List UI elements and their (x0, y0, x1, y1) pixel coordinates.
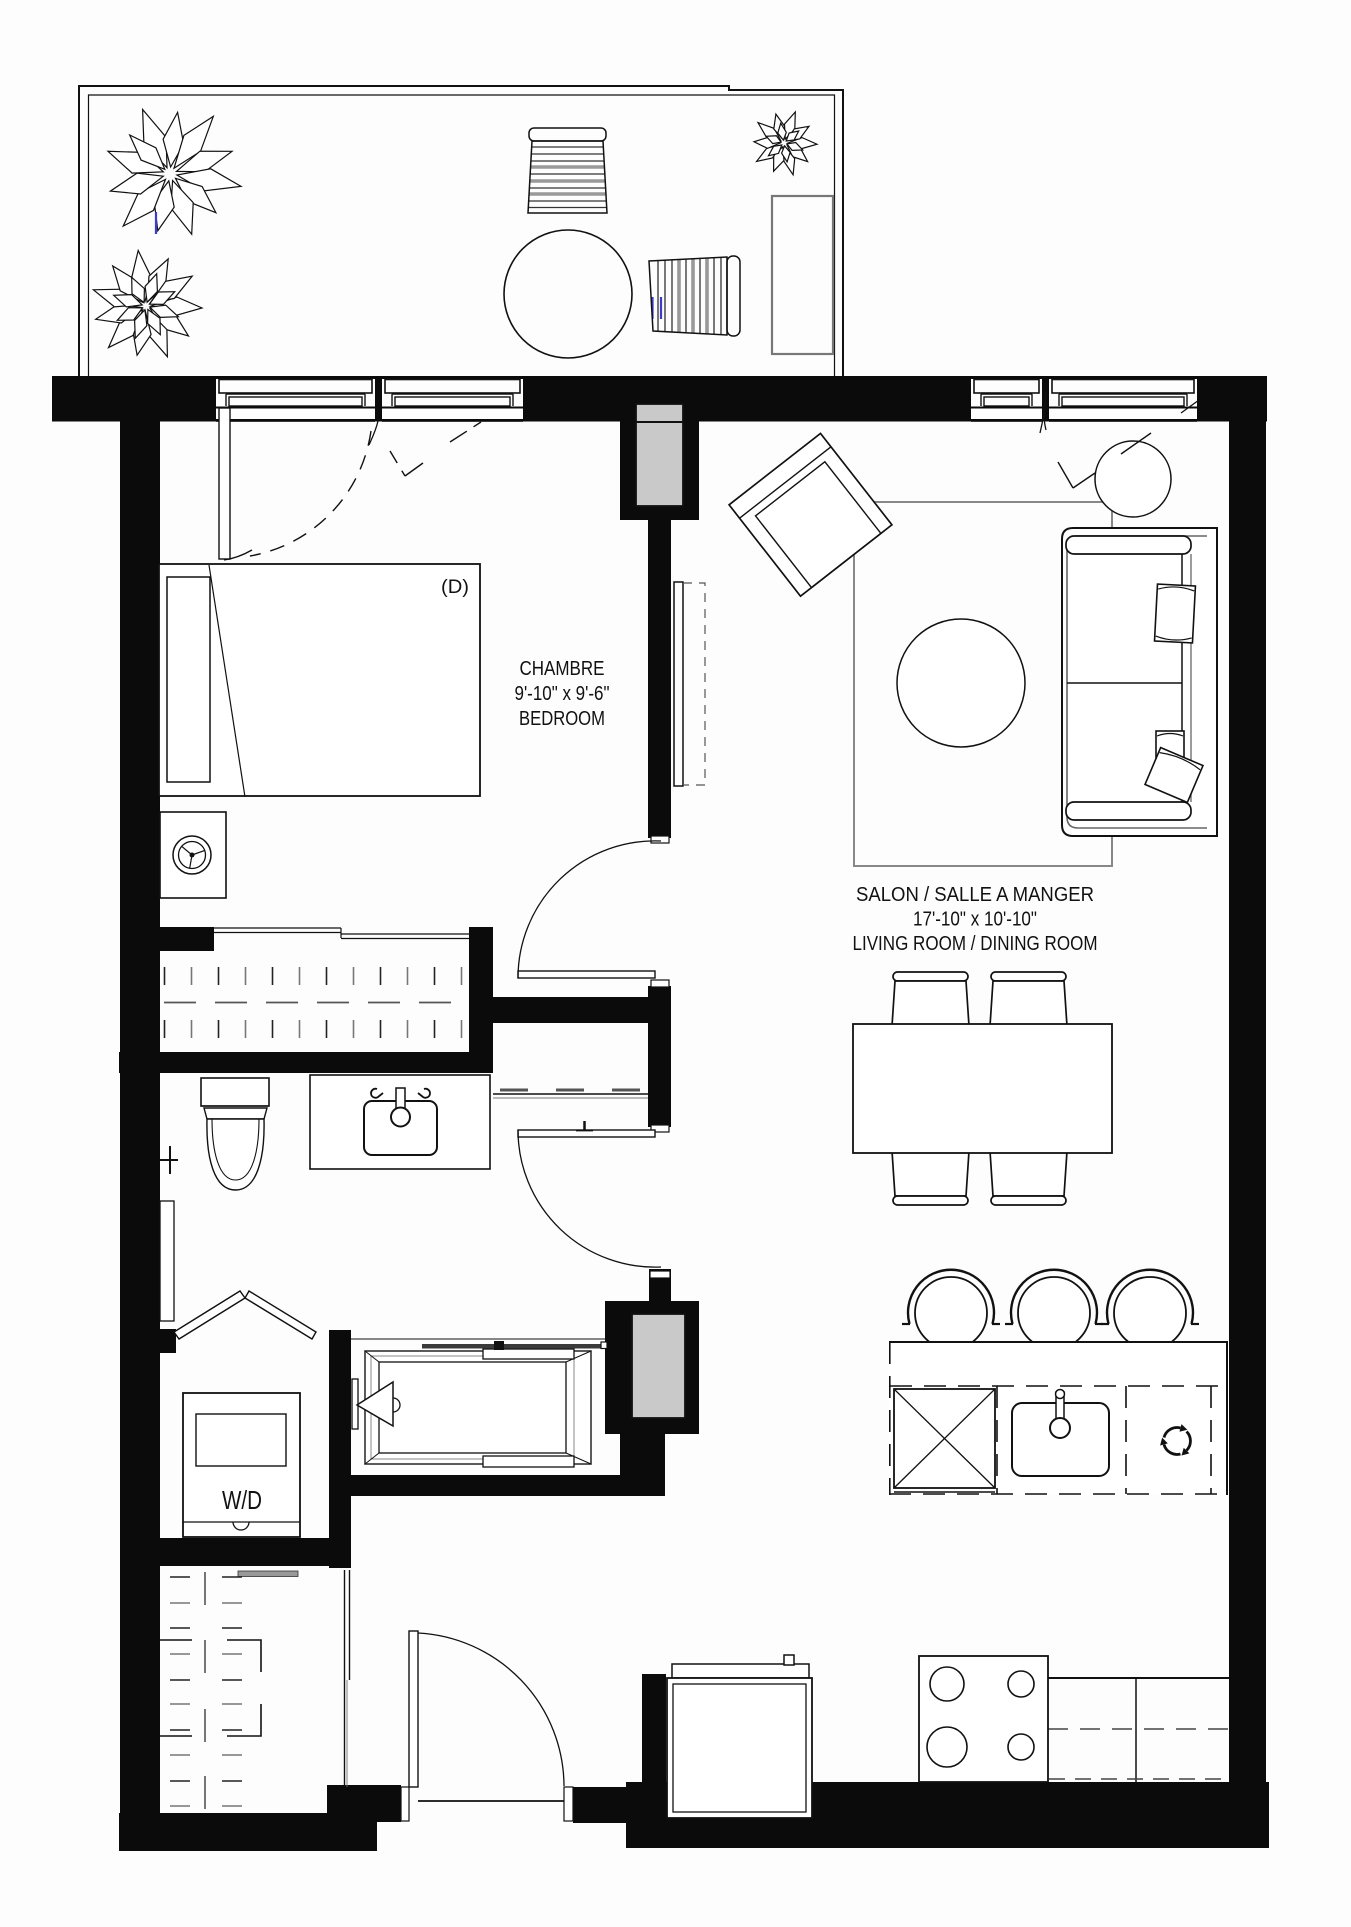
svg-text:17'-10" x 10'-10": 17'-10" x 10'-10" (913, 909, 1037, 931)
svg-text:LIVING ROOM / DINING ROOM: LIVING ROOM / DINING ROOM (853, 933, 1098, 955)
svg-text:(D): (D) (441, 577, 469, 598)
svg-text:CHAMBRE: CHAMBRE (520, 658, 605, 680)
svg-text:BEDROOM: BEDROOM (519, 708, 605, 730)
svg-text:W/D: W/D (222, 1485, 262, 1515)
svg-text:SALON / SALLE A MANGER: SALON / SALLE A MANGER (856, 884, 1094, 906)
svg-text:9'-10" x 9'-6": 9'-10" x 9'-6" (515, 683, 610, 705)
